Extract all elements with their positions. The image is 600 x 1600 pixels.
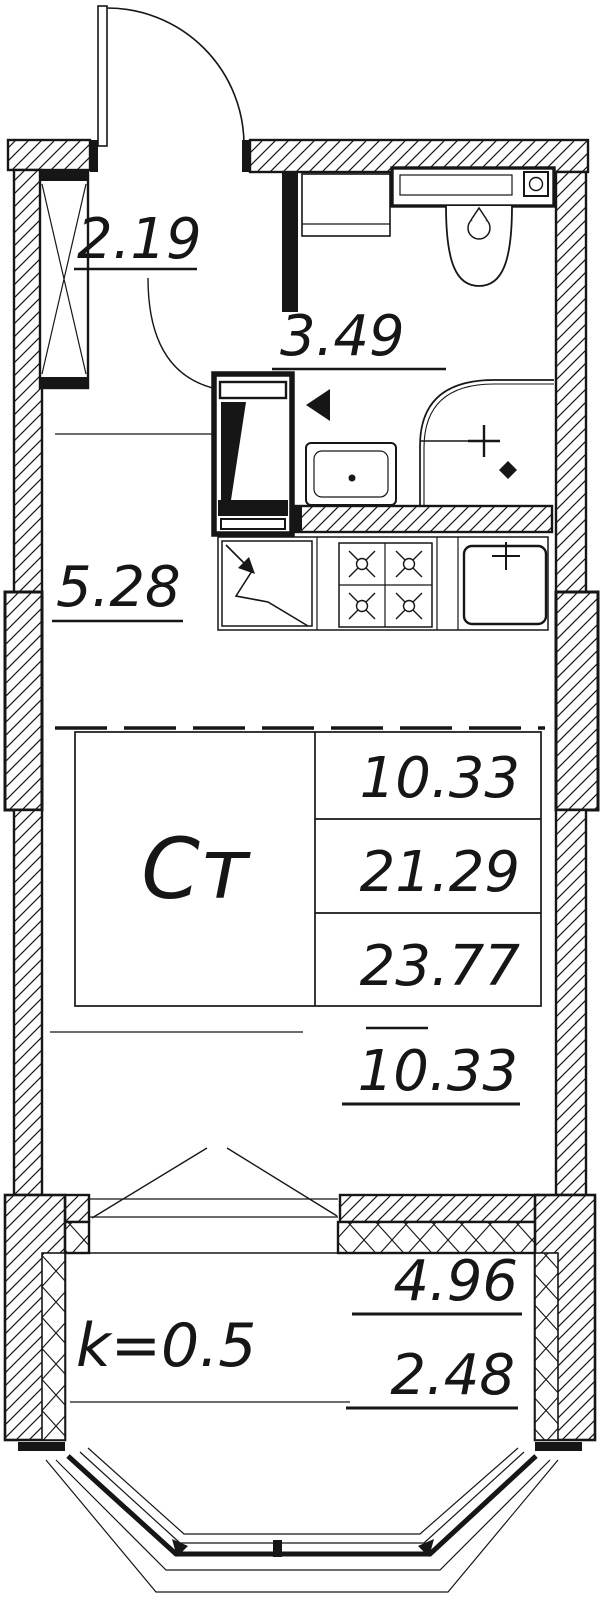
balcony-door [92, 1148, 337, 1218]
partition-hall-bath [282, 172, 298, 312]
wall-top-left-segment [8, 140, 90, 170]
balcony-door-fold-left [92, 1148, 207, 1218]
shaft-bottom-band [218, 500, 288, 516]
floor-plan-canvas: 2.19 3.49 [0, 0, 600, 1600]
stove [339, 543, 432, 627]
bathroom-area-label: 3.49 [280, 304, 405, 369]
balcony: k=0.5 4.96 2.48 [5, 1195, 595, 1592]
balcony-area-full: 4.96 [393, 1249, 518, 1314]
bath-door-direction-arrow [306, 389, 330, 421]
living-zone-area-label: 10.33 [358, 1039, 518, 1104]
entry-door-swing-arc [107, 8, 244, 145]
trans-right-hatch [340, 1195, 538, 1222]
shaft-bottom-slit [221, 519, 285, 529]
zone-area-value: 10.33 [360, 746, 520, 811]
shower [420, 380, 554, 506]
kitchen-sink [464, 542, 546, 624]
burner-ring [357, 559, 368, 570]
shower-screen-inner [424, 384, 554, 506]
balcony-door-fold-right [227, 1148, 337, 1216]
total-area-value: 23.77 [360, 934, 521, 999]
washing-machine-body [302, 174, 390, 236]
outer-walls [5, 140, 598, 1195]
burner-ring [357, 601, 368, 612]
wardrobe-top-band [40, 172, 88, 181]
toilet [392, 168, 554, 286]
burner-ring [404, 559, 415, 570]
wall-right-pier [556, 592, 598, 810]
wall-right-upper [556, 172, 586, 592]
balcony-area-reduced: 2.48 [390, 1343, 515, 1408]
kitchen-area-label: 5.28 [56, 555, 181, 620]
balcony-pier-left-base [18, 1442, 65, 1451]
bay-line-inner-1 [88, 1448, 518, 1534]
burner-ring [404, 601, 415, 612]
area-table: Ст 10.33 21.29 23.77 [75, 732, 541, 1006]
bathroom-sink-inner [314, 451, 388, 497]
toilet-flush [468, 217, 490, 239]
toilet-cistern-inner [400, 175, 512, 195]
living-zone: Ст 10.33 21.29 23.77 10.33 [50, 728, 545, 1218]
hallway: 2.19 [74, 207, 246, 392]
living-area-value: 21.29 [360, 840, 520, 905]
bay-window [46, 1448, 558, 1592]
balcony-pier-right-cross [535, 1253, 558, 1440]
wardrobe-bottom-band [40, 377, 88, 388]
trans-left-hatch [65, 1195, 89, 1222]
bathroom: 3.49 [272, 168, 554, 506]
partition-bath-kitchen-cap [292, 506, 302, 532]
hallway-area-label: 2.19 [77, 207, 202, 272]
floor-plan: 2.19 3.49 [0, 0, 600, 1600]
utility-shaft [214, 374, 292, 534]
wall-left-pier [5, 592, 42, 810]
balcony-coefficient-label: k=0.5 [76, 1311, 256, 1381]
bay-center-mullion [273, 1540, 282, 1557]
entry-jamb-left [90, 140, 98, 172]
studio-type-label: Ст [141, 820, 251, 918]
shower-drain-icon [499, 461, 517, 479]
fridge [222, 541, 312, 626]
wall-left-lower [14, 810, 42, 1195]
shower-screen-outer [420, 380, 554, 506]
entry-door [98, 6, 244, 146]
shaft-top-band [220, 382, 286, 398]
wall-right-lower [556, 810, 586, 1195]
toilet-valve [530, 178, 543, 191]
washing-machine [302, 174, 390, 236]
bathroom-sink [306, 443, 396, 505]
bathroom-sink-drain [349, 475, 356, 482]
wall-left-upper [14, 170, 42, 592]
balcony-pier-left-cross [42, 1253, 65, 1440]
entry-door-leaf [98, 6, 107, 146]
partition-bath-kitchen-body [292, 506, 552, 532]
wardrobe [40, 172, 88, 388]
shower-mixer-cross-icon [468, 425, 500, 457]
balcony-pier-right-base [535, 1442, 582, 1451]
partition-bath-kitchen [292, 506, 552, 532]
